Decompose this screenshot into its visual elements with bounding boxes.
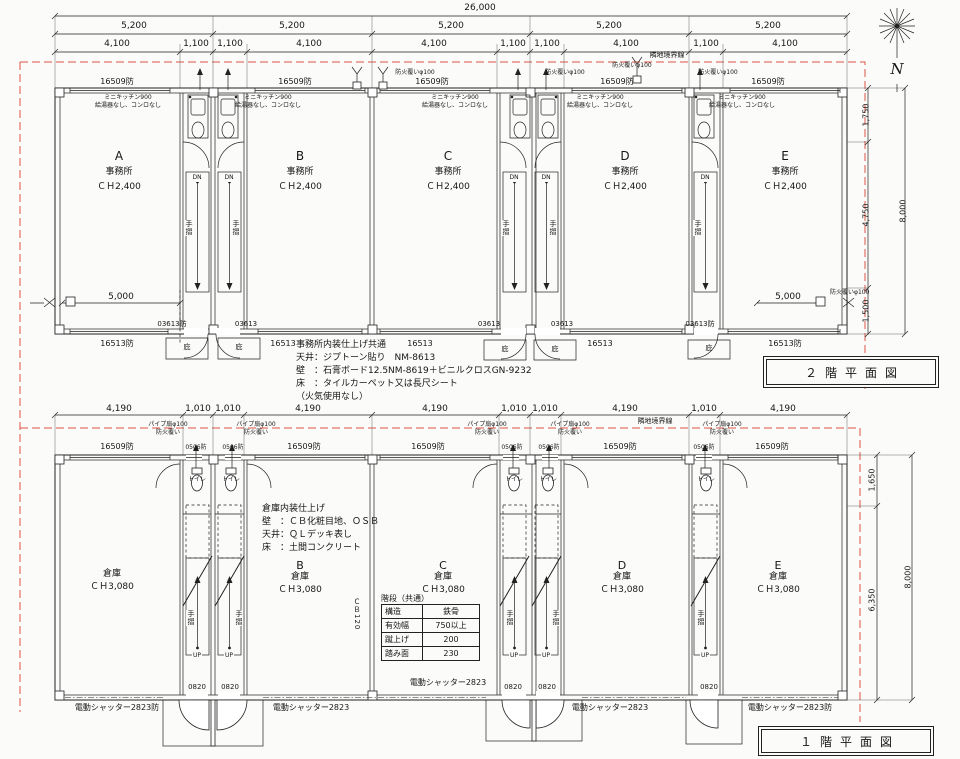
f1-room-letter: E — [775, 560, 782, 572]
f1-dim-right: 1,650 — [868, 469, 877, 492]
f2-room-letter: E — [781, 150, 789, 163]
f2-stair-dn: DN — [540, 175, 551, 182]
f2-room-ch: ＣＨ2,400 — [603, 183, 647, 193]
f2-title-box: ２階平面図 — [763, 356, 939, 388]
f1-fan-cover: 防火覆い — [244, 430, 268, 437]
f1-handrail-label: 手摺 — [551, 610, 560, 626]
f2-stair-dn: DN — [508, 175, 519, 182]
f2-room-letter: C — [444, 150, 452, 163]
f1-handrail-label: 手摺 — [696, 610, 705, 626]
f1-room-use: 倉庫 — [291, 573, 309, 583]
f1-room-ch: ＣＨ3,080 — [600, 586, 644, 596]
f2-room-letter: B — [296, 150, 304, 163]
f2-dim-4100: 4,100 — [296, 40, 322, 50]
stair-spec-val: 750以上 — [423, 619, 480, 633]
f1-stair-up: UP — [509, 653, 519, 660]
stair-spec-key: 踏み面 — [382, 647, 423, 661]
f2-door-mark: 03613 — [551, 321, 573, 329]
f2-vent-label: 防火覆いφ100 — [612, 63, 651, 70]
f1-dim-4190: 4,190 — [422, 405, 448, 415]
f1-stair-up: UP — [541, 653, 551, 660]
f1-dim-1010: 1,010 — [691, 405, 717, 415]
f2-dim-right: 4,750 — [862, 204, 871, 227]
f2-vent-label: 防火覆いφ100 — [698, 70, 737, 77]
f1-note-line: 床 ：土間コンクリート — [262, 544, 361, 554]
stair-spec-key: 蹴上げ — [382, 633, 423, 647]
f2-canopy-label: 庇 — [706, 345, 713, 353]
f2-dim-4100: 4,100 — [421, 40, 447, 50]
f2-top-windows — [70, 88, 840, 93]
f1-fan-label: パイプ扇φ100 — [702, 422, 741, 429]
f2-room-ch: ＣＨ2,400 — [426, 183, 470, 193]
f2-kitchen-label: ミニキッチン900 — [718, 95, 765, 102]
f1-fan-label: パイプ扇φ100 — [467, 422, 506, 429]
f2-dim-4100: 4,100 — [613, 40, 639, 50]
f1-shutter-label: 電動シャッター2823 — [572, 704, 648, 713]
f1-fan-label: パイプ扇φ100 — [550, 422, 589, 429]
f1-toilets — [156, 464, 747, 514]
stair-spec-val: 230 — [423, 647, 480, 661]
stair-spec-val: 200 — [423, 633, 480, 647]
f1-fan-cover: 防火覆い — [475, 430, 499, 437]
drawing-sheet: 26,000 5,200 5,200 5,200 5,200 5,200 4,1… — [0, 0, 960, 759]
f1-room-letter: D — [618, 560, 626, 572]
f1-door-mark: 0820 — [220, 684, 240, 692]
f2-dim-5000: 5,000 — [108, 293, 134, 303]
f1-stair-table-title: 階段（共通） — [381, 595, 429, 604]
f2-door-mark: 03613 — [478, 321, 500, 329]
f2-window-mark: 16513 — [587, 340, 612, 349]
f2-room-use: 事務所 — [286, 168, 313, 178]
f2-stair-dn: DN — [699, 175, 710, 182]
f1-boundary-label: 隣地境界線 — [638, 418, 673, 426]
f2-columns — [55, 88, 847, 334]
f1-stair-table: 構造 鉄骨 有効幅 750以上 蹴上げ 200 踏み面 230 — [381, 604, 480, 661]
f2-handrail-label: 手摺 — [184, 220, 193, 236]
f2-kitchen-note: 給湯器なし、コンロなし — [235, 103, 301, 110]
north-arrow-icon — [879, 8, 915, 92]
f1-window-mark: 16509防 — [100, 443, 133, 452]
f2-dim-right: 1,500 — [862, 300, 871, 323]
f1-window-small: 0506防 — [222, 445, 243, 452]
f2-dim-right-total: 8,000 — [899, 200, 908, 223]
f1-dim-4190: 4,190 — [612, 405, 638, 415]
f2-room-letter: A — [115, 150, 123, 163]
f1-dim-right-total: 8,000 — [904, 566, 913, 589]
f2-handrail-label: 手摺 — [548, 220, 557, 236]
f2-room-use: 事務所 — [611, 168, 638, 178]
f2-window-mark: 16509防 — [600, 78, 633, 87]
f2-dim-1100: 1,100 — [217, 40, 243, 50]
f2-dim-1100: 1,100 — [534, 40, 560, 50]
f1-dim-1010: 1,010 — [215, 405, 241, 415]
f1-dim-1010: 1,010 — [532, 405, 558, 415]
f1-room-letter: B — [296, 560, 304, 572]
f2-window-mark: 16509防 — [415, 78, 448, 87]
f1-window-mark: 16509防 — [287, 443, 320, 452]
f2-dim-4100: 4,100 — [772, 40, 798, 50]
f2-dim-5200: 5,200 — [121, 22, 147, 32]
f1-dim-1010: 1,010 — [501, 405, 527, 415]
f1-stair-up: UP — [224, 653, 234, 660]
stair-spec-key: 有効幅 — [382, 619, 423, 633]
f1-stall-door-arcs — [156, 464, 747, 488]
f1-room-ch: ＣＨ3,080 — [756, 586, 800, 596]
f1-window-small: 0506防 — [501, 445, 522, 452]
f2-stair-dn: DN — [223, 175, 234, 182]
f1-note-line: 倉庫内装仕上げ — [262, 505, 325, 515]
f2-canopy-label: 庇 — [236, 344, 243, 352]
f1-window-small: 0506防 — [538, 445, 559, 452]
f2-window-mark: 16513 — [270, 340, 295, 349]
f2-window-mark: 16513 — [407, 340, 432, 349]
f2-window-mark: 16509防 — [751, 78, 784, 87]
f2-interior-dims — [30, 290, 854, 345]
f1-room-ch: ＣＨ3,080 — [278, 586, 322, 596]
f1-shutter-label: 電動シャッター2823防 — [748, 704, 832, 713]
f1-window-mark: 16509防 — [411, 443, 444, 452]
f1-handrail-label: 手摺 — [505, 610, 514, 626]
f2-room-use: 事務所 — [105, 168, 132, 178]
stair-spec-val: 鉄骨 — [423, 605, 480, 619]
f2-vent-label: 防火覆いφ100 — [395, 70, 434, 77]
f1-note-line: 天井：ＱＬデッキ表し — [262, 531, 352, 541]
f2-dim-5200: 5,200 — [438, 22, 464, 32]
f1-stair-up: UP — [192, 653, 202, 660]
f1-note-line: 壁 ：ＣＢ化粧目地、ＯＳＢ — [262, 518, 379, 528]
f1-shutter-label: 電動シャッター2823 — [409, 679, 487, 688]
f1-title: １階平面図 — [761, 729, 931, 753]
f2-kitchen-label: ミニキッチン900 — [244, 95, 291, 102]
f2-kitchen-label: ミニキッチン900 — [576, 95, 623, 102]
north-label: N — [890, 60, 903, 78]
f2-note-line: 床 ：タイルカーペット又は長尺シート — [296, 380, 458, 390]
f2-window-mark: 16509防 — [278, 78, 311, 87]
f2-note-line: 事務所内装仕上げ共通 — [296, 341, 386, 351]
f1-room-use: 倉庫 — [103, 570, 121, 580]
f1-toilet-label: トイレ — [222, 477, 240, 484]
f2-kitchen-label: ミニキッチン900 — [431, 95, 478, 102]
f1-door-mark: 0820 — [699, 684, 719, 692]
f1-fan-label: パイプ扇φ100 — [148, 422, 187, 429]
f2-kitchen-note: 給湯器なし、コンロなし — [422, 103, 488, 110]
f1-window-small: 0506防 — [693, 445, 714, 452]
f2-dim-right: 1,750 — [862, 104, 871, 127]
f1-room-use: 倉庫 — [769, 573, 787, 583]
f2-room-use: 事務所 — [434, 168, 461, 178]
f2-window-mark: 16513防 — [768, 340, 801, 349]
f2-canopy-boxes — [166, 338, 730, 360]
f1-room-ch: ＣＨ3,080 — [90, 583, 134, 593]
f2-handrail-label: 手摺 — [231, 220, 240, 236]
f2-vent-label: 防火覆いφ100 — [545, 70, 584, 77]
f2-handrail-label: 手摺 — [501, 220, 510, 236]
f1-fan-cover: 防火覆い — [710, 430, 734, 437]
f1-handrail-label: 手摺 — [186, 610, 195, 626]
f2-room-use: 事務所 — [771, 168, 798, 178]
f2-kitchen-note: 給湯器なし、コンロなし — [95, 103, 161, 110]
f2-note-line: 天井：ジプトーン貼り NM-8613 — [296, 354, 435, 364]
f2-dim-5200: 5,200 — [596, 22, 622, 32]
f2-door-mark: 03613 — [235, 321, 257, 329]
f2-room-ch: ＣＨ2,400 — [278, 183, 322, 193]
f2-room-ch: ＣＨ2,400 — [97, 183, 141, 193]
f2-door-mark: 03613防 — [157, 321, 186, 329]
f1-fan-cover: 防火覆い — [156, 430, 180, 437]
f2-window-mark: 16509防 — [100, 78, 133, 87]
f1-door-mark: 0820 — [537, 684, 557, 692]
f1-dim-4190: 4,190 — [770, 405, 796, 415]
f1-window-mark: 16509防 — [755, 443, 788, 452]
f1-wall-mark: ＣＢ120 — [352, 598, 361, 630]
f1-toilet-label: トイレ — [188, 477, 206, 484]
f2-window-mark: 16513防 — [100, 340, 133, 349]
f1-handrail-label: 手摺 — [234, 610, 243, 626]
f1-window-small: 0506防 — [185, 445, 206, 452]
f2-kitchen-note: 給湯器なし、コンロなし — [709, 103, 775, 110]
f2-dim-4100: 4,100 — [104, 40, 130, 50]
f2-dim-1100: 1,100 — [693, 40, 719, 50]
f2-dim-5200: 5,200 — [279, 22, 305, 32]
f2-handrail-label: 手摺 — [693, 220, 702, 236]
f1-door-mark: 0820 — [503, 684, 523, 692]
f2-dim-5200: 5,200 — [755, 22, 781, 32]
f2-title: ２階平面図 — [766, 359, 936, 385]
f2-canopy-label: 庇 — [552, 346, 559, 354]
f1-title-box: １階平面図 — [758, 726, 934, 756]
f2-dim-1100: 1,100 — [500, 40, 526, 50]
f1-fan-cover: 防火覆い — [558, 430, 582, 437]
f1-dim-4190: 4,190 — [295, 405, 321, 415]
f2-dim-1100: 1,100 — [183, 40, 209, 50]
f1-fan-label: パイプ扇φ100 — [236, 422, 275, 429]
f2-note-line: 壁 ：石膏ボード12.5NM-8619＋ビニルクロスGN-9232 — [296, 367, 532, 377]
f2-dim-total: 26,000 — [464, 4, 496, 14]
f1-shutter-label: 電動シャッター2823 — [273, 704, 349, 713]
f2-vent-label: 防火覆いφ100 — [830, 290, 869, 297]
f2-entry-door-arcs — [184, 334, 718, 359]
f1-door-mark: 0820 — [187, 684, 207, 692]
f2-canopy-label: 庇 — [184, 344, 191, 352]
f1-dim-1010: 1,010 — [185, 405, 211, 415]
f1-shutter-label: 電動シャッター2823防 — [75, 704, 159, 713]
f1-room-use: 倉庫 — [613, 573, 631, 583]
f2-boundary-label: 隣地境界線 — [650, 52, 685, 60]
f2-canopy-label: 庇 — [502, 346, 509, 354]
f1-toilet-label: トイレ — [539, 477, 557, 484]
f2-note-line: （火気使用なし） — [296, 393, 368, 403]
f1-window-mark: 16509防 — [603, 443, 636, 452]
stair-spec-key: 構造 — [382, 605, 423, 619]
f1-toilet-label: トイレ — [505, 477, 523, 484]
f2-kitchen-note: 給湯器なし、コンロなし — [567, 103, 633, 110]
f2-door-mark: 03613防 — [685, 321, 714, 329]
f1-porches — [163, 700, 742, 746]
f2-stair-dn: DN — [191, 175, 202, 182]
f1-room-use: 倉庫 — [434, 573, 452, 583]
f2-room-ch: ＣＨ2,400 — [763, 183, 807, 193]
f2-room-letter: D — [620, 150, 629, 163]
f1-dim-right: 6,350 — [868, 589, 877, 612]
f1-dim-4190: 4,190 — [106, 405, 132, 415]
f2-kitchen-label: ミニキッチン900 — [104, 95, 151, 102]
f2-dim-5000: 5,000 — [775, 293, 801, 303]
f1-room-letter: C — [439, 560, 447, 572]
f1-stair-up: UP — [700, 653, 710, 660]
f1-top-windows — [70, 455, 838, 460]
f1-toilet-label: トイレ — [697, 477, 715, 484]
